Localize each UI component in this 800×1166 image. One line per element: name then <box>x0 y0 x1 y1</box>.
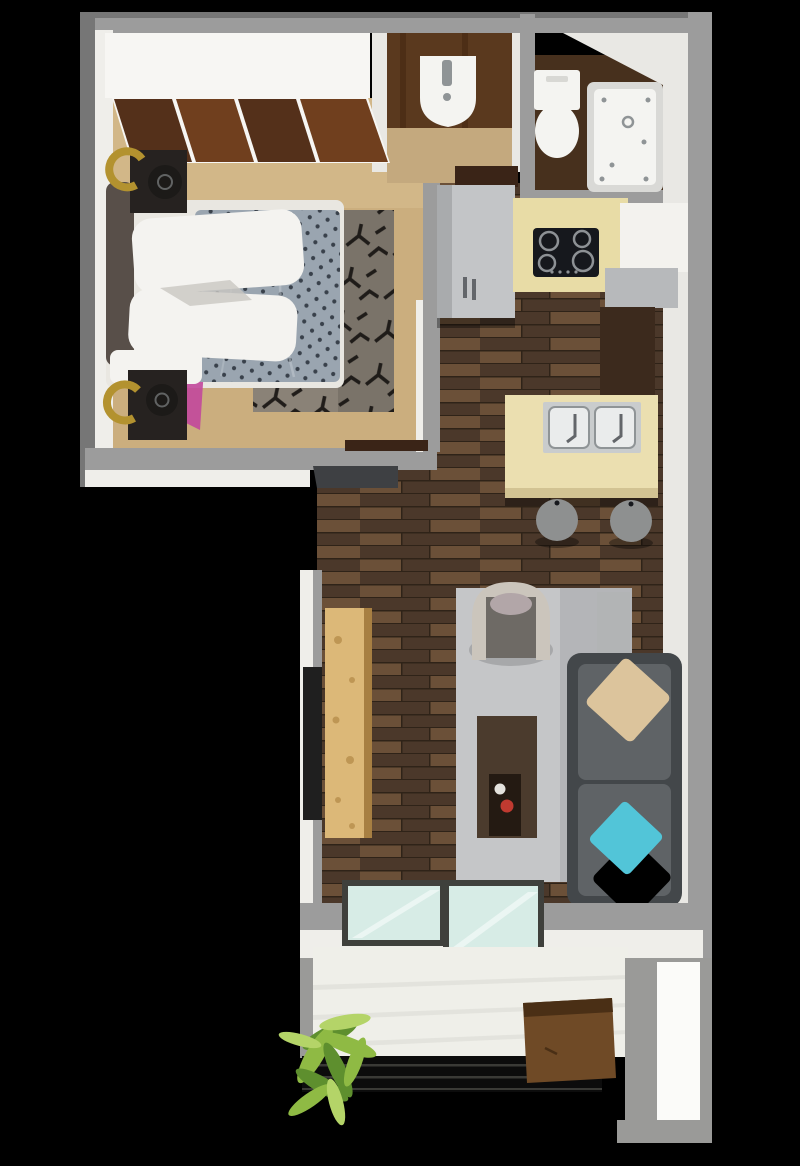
toilet-bowl <box>535 104 579 158</box>
cabinet-handle <box>463 277 467 298</box>
floor-plan-canvas <box>0 0 800 1166</box>
stool-notch <box>629 502 634 507</box>
tub-jet <box>646 98 651 103</box>
lamp-shade <box>146 384 178 416</box>
wall-tv <box>303 667 322 820</box>
bath-divider-mid <box>520 14 535 210</box>
upper-cabinet <box>620 203 688 272</box>
pantry-cabinet <box>600 307 655 397</box>
stool-notch <box>555 501 560 506</box>
balcony-privacy-panel <box>657 962 700 1120</box>
tub-jet <box>644 177 649 182</box>
counter-nook <box>455 166 518 187</box>
door-threshold <box>345 440 428 451</box>
balcony-table <box>523 998 616 1083</box>
fridge-cabinet-side <box>437 185 452 318</box>
bedroom-bottom-wall-face <box>85 470 310 487</box>
armchair <box>472 582 550 660</box>
powder-room <box>420 56 476 127</box>
coffee-table <box>477 716 537 838</box>
cabinet-handle <box>472 279 476 300</box>
sliding-glass-door <box>345 883 443 943</box>
red-mug <box>501 800 514 813</box>
toilet-buttons <box>546 76 568 82</box>
tub-jet <box>602 98 607 103</box>
tub-jet <box>642 140 647 145</box>
armchair-cushion <box>490 593 532 615</box>
bathtub-basin <box>594 89 656 185</box>
divider-face <box>416 300 423 452</box>
entry-mat <box>313 466 398 488</box>
island-front-face <box>505 488 658 498</box>
balcony-bottom-structure <box>617 1120 712 1143</box>
sideboard-side <box>364 608 372 838</box>
lamp-shade <box>148 165 182 199</box>
side-table <box>597 592 630 658</box>
bath-divider-mid-face <box>512 33 520 172</box>
cabinet-shadow <box>437 318 515 328</box>
sofa <box>567 653 682 919</box>
top-wall-edge <box>85 12 710 18</box>
dish <box>495 784 506 795</box>
tub-jet <box>600 177 605 182</box>
sink-faucet <box>442 60 452 86</box>
sliding-glass-door <box>446 883 541 953</box>
left-wall-outer <box>80 12 95 487</box>
right-wall-outer <box>688 12 712 958</box>
tub-jet <box>610 163 615 168</box>
closet-cabinet <box>105 33 370 98</box>
paneling-streak <box>400 33 406 129</box>
counter-return <box>605 268 678 308</box>
sink-drain <box>443 93 451 101</box>
floor-plan-render <box>0 0 800 1166</box>
